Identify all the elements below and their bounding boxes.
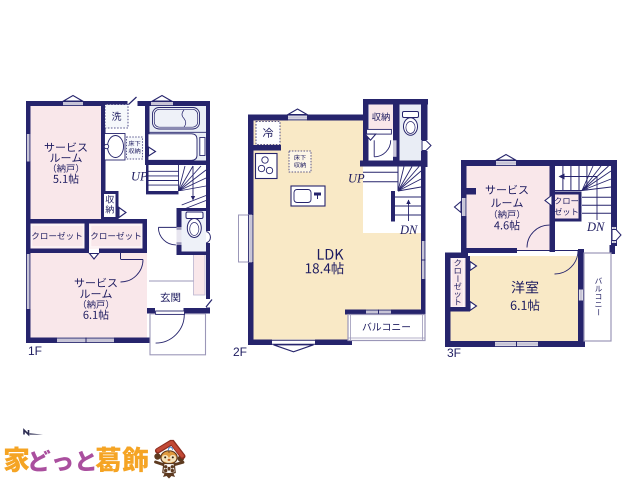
svg-text:UP: UP (131, 170, 148, 184)
svg-text:2F: 2F (233, 345, 247, 359)
svg-text:3F: 3F (447, 346, 461, 360)
svg-text:DN: DN (399, 223, 418, 237)
svg-text:UP: UP (348, 172, 365, 186)
svg-text:1F: 1F (28, 344, 42, 358)
svg-text:DN: DN (586, 220, 605, 234)
